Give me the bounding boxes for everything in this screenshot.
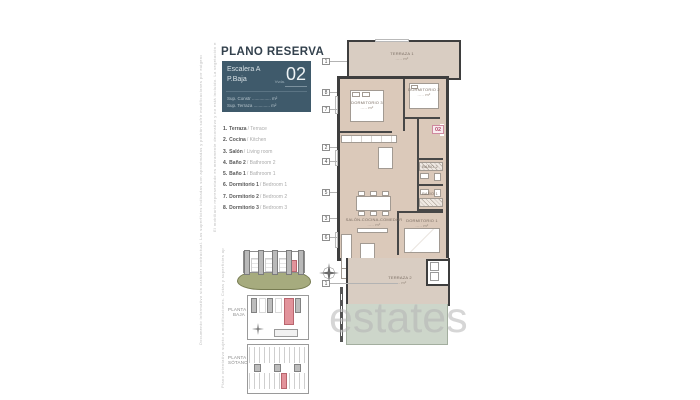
legend-item-salon: 3.Salón/ Living room: [223, 150, 318, 155]
planta-baja-label: PLANTA BAJA: [228, 307, 245, 317]
elevation-tower: [286, 250, 292, 275]
washer-icon: [430, 262, 439, 271]
dining-table: [356, 196, 391, 211]
planta-sotano-thumbnail: [247, 344, 309, 394]
shower-bath1: [419, 198, 443, 207]
callout-dorm3: 8: [322, 89, 330, 96]
legend-item-bano2: 4.Baño 2/ Bathroom 2: [223, 161, 318, 166]
dryer-icon: [430, 272, 439, 281]
wall-dorm3-bottom: [340, 131, 392, 133]
highlighted-parking: [281, 373, 287, 389]
vertical-disclaimer-3: Plano orientativo sujeto a modificacione…: [220, 248, 225, 388]
legend-item-dormitorio1: 6.Dormitorio 1/ Bedroom 1: [223, 183, 318, 188]
card-divider: [226, 91, 307, 92]
wall-dorm1-top: [397, 211, 443, 213]
terrace-railing: [375, 39, 409, 42]
parking-stalls-bottom: [249, 373, 307, 389]
pillow-dorm3-2: [362, 92, 370, 97]
bath1-label: BAÑO 1: [417, 192, 443, 197]
salon-label: SALÓN-COCINA-COMEDOR ..... m²: [344, 218, 404, 227]
floor-label: P.Baja: [227, 76, 247, 83]
legend-item-dormitorio3: 8.Dormitorio 3/ Bedroom 3: [223, 206, 318, 211]
chair-1: [358, 191, 365, 196]
callout-kitchen: 2: [322, 144, 330, 151]
window-living: [335, 232, 338, 248]
chair-5: [370, 211, 377, 216]
elevation-tower: [298, 250, 304, 275]
bath2-label: BAÑO 2: [417, 165, 443, 170]
callout-dorm2: 7: [322, 106, 330, 113]
thumb-unit: [275, 298, 282, 313]
wall-bath2-top: [417, 158, 443, 160]
page-title: PLANO RESERVA: [221, 46, 316, 58]
elevation-building: [243, 251, 305, 273]
built-surface-label: Sup. Constr ............... m²: [227, 96, 277, 101]
legend-item-bano1: 5.Baño 1/ Bathroom 1: [223, 172, 318, 177]
chair-4: [358, 211, 365, 216]
room-legend: 1.Terraza/ Terrace 2.Cocina/ Kitchen 3.S…: [223, 127, 318, 217]
legend-item-terraza: 1.Terraza/ Terrace: [223, 127, 318, 132]
unit-info-card: Escalera A P.Baja Vvda. 02 Sup. Constr .…: [222, 61, 311, 112]
watermark-container: estates.c: [329, 292, 471, 348]
unit-number-badge: 02: [432, 125, 444, 134]
thumb-block: [254, 364, 261, 372]
thumb-block: [251, 298, 257, 313]
utility-room: [426, 259, 450, 286]
staircase-label: Escalera A: [227, 66, 260, 73]
pillow-dorm3-1: [352, 92, 360, 97]
leader-line: [330, 283, 398, 284]
callout-bath1: 5: [322, 189, 330, 196]
wall-bath1-top: [417, 184, 443, 186]
window-dorm3: [335, 96, 338, 114]
dorm2-label: DORMITORIO 2 ..... m²: [406, 88, 442, 97]
chair-2: [370, 191, 377, 196]
leader-line: [330, 61, 347, 62]
terrace-1-label: TERRAZA 1 ..... m²: [365, 52, 439, 61]
dorm3-label: DORMITORIO 3 ..... m²: [348, 101, 386, 110]
kitchen-counter: [341, 135, 397, 143]
callout-salon: 3: [322, 215, 330, 222]
sideboard: [357, 228, 388, 233]
leader-line: [330, 192, 337, 193]
kitchen-island: [378, 147, 393, 169]
wall-bedroom-divider: [403, 79, 405, 131]
leader-line: [330, 218, 337, 219]
thumb-block: [295, 298, 301, 313]
sink-bath2: [420, 173, 429, 179]
parking-stalls-top: [249, 347, 307, 363]
elevation-tower: [272, 250, 278, 275]
thumb-unit: [259, 298, 266, 313]
elevation-tower: [258, 250, 264, 275]
unit-number: 02: [285, 64, 307, 87]
bed-dorm1: [404, 228, 440, 253]
terrace-surface-label: Sup. Terraza ............. m²: [227, 103, 276, 108]
dorm1-label: DORMITORIO 1 ..... m²: [401, 219, 443, 228]
toilet-bath2: [434, 173, 441, 181]
callout-terrace-1: 1: [322, 58, 330, 65]
elevation-tower: [244, 250, 250, 275]
chair-3: [382, 191, 389, 196]
vertical-disclaimer-2: El mobiliario representado es meramente …: [212, 42, 217, 232]
leader-line: [330, 161, 337, 162]
highlighted-unit: [284, 298, 294, 325]
unit-prefix-label: Vvda.: [275, 79, 285, 84]
leader-line: [330, 109, 337, 110]
vertical-disclaimer-1: Documento informativo sin carácter contr…: [198, 55, 203, 345]
leader-line: [330, 237, 337, 238]
watermark-text: estates.c: [329, 292, 471, 344]
callout-terrace-2: 1: [322, 280, 330, 287]
leader-line: [330, 147, 337, 148]
thumb-block: [294, 364, 301, 372]
planta-sotano-label: PLANTA SÓTANO: [228, 355, 245, 365]
window-kitchen: [335, 150, 338, 166]
building-elevation-thumbnail: [237, 247, 311, 292]
pool-shape: [274, 329, 298, 337]
chair-6: [382, 211, 389, 216]
callout-dorm1: 6: [322, 234, 330, 241]
legend-item-dormitorio2: 7.Dormitorio 2/ Bedroom 2: [223, 195, 318, 200]
leader-line: [330, 92, 337, 93]
thumb-compass-icon: [252, 322, 264, 334]
callout-bath2: 4: [322, 158, 330, 165]
thumb-block: [267, 298, 273, 313]
legend-item-cocina: 2.Cocina/ Kitchen: [223, 138, 318, 143]
thumb-block: [274, 364, 281, 372]
wall-dorm2-bottom: [403, 117, 440, 119]
